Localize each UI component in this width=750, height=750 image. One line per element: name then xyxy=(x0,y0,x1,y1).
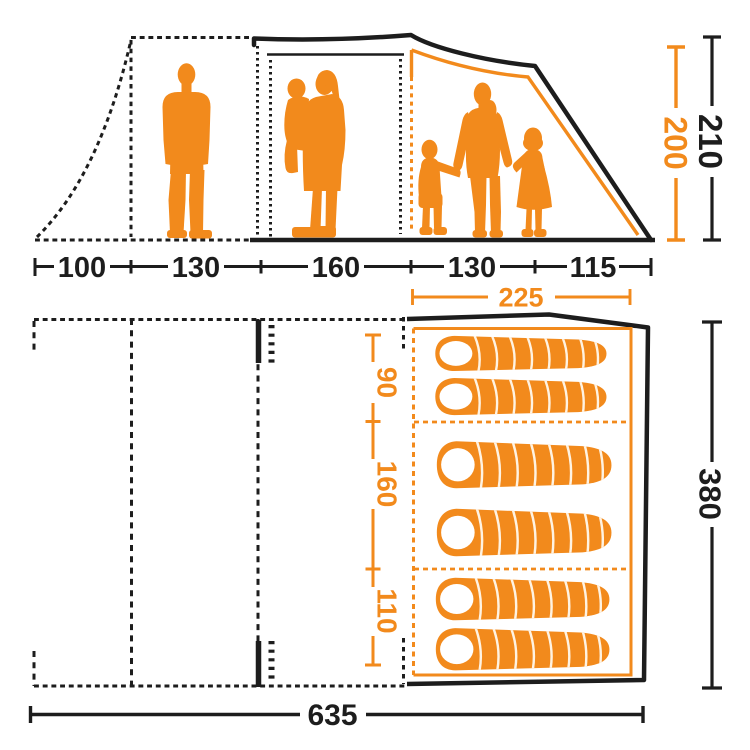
svg-text:200: 200 xyxy=(658,116,694,169)
svg-text:130: 130 xyxy=(172,252,220,284)
svg-text:115: 115 xyxy=(570,252,617,284)
svg-text:90: 90 xyxy=(372,367,403,398)
svg-text:100: 100 xyxy=(58,252,106,284)
svg-text:210: 210 xyxy=(692,114,729,169)
svg-text:160: 160 xyxy=(312,252,360,284)
svg-text:635: 635 xyxy=(307,699,357,732)
svg-text:380: 380 xyxy=(693,468,728,520)
svg-text:225: 225 xyxy=(498,283,543,313)
svg-text:110: 110 xyxy=(372,588,403,633)
svg-text:130: 130 xyxy=(448,252,496,284)
svg-text:160: 160 xyxy=(372,461,403,508)
